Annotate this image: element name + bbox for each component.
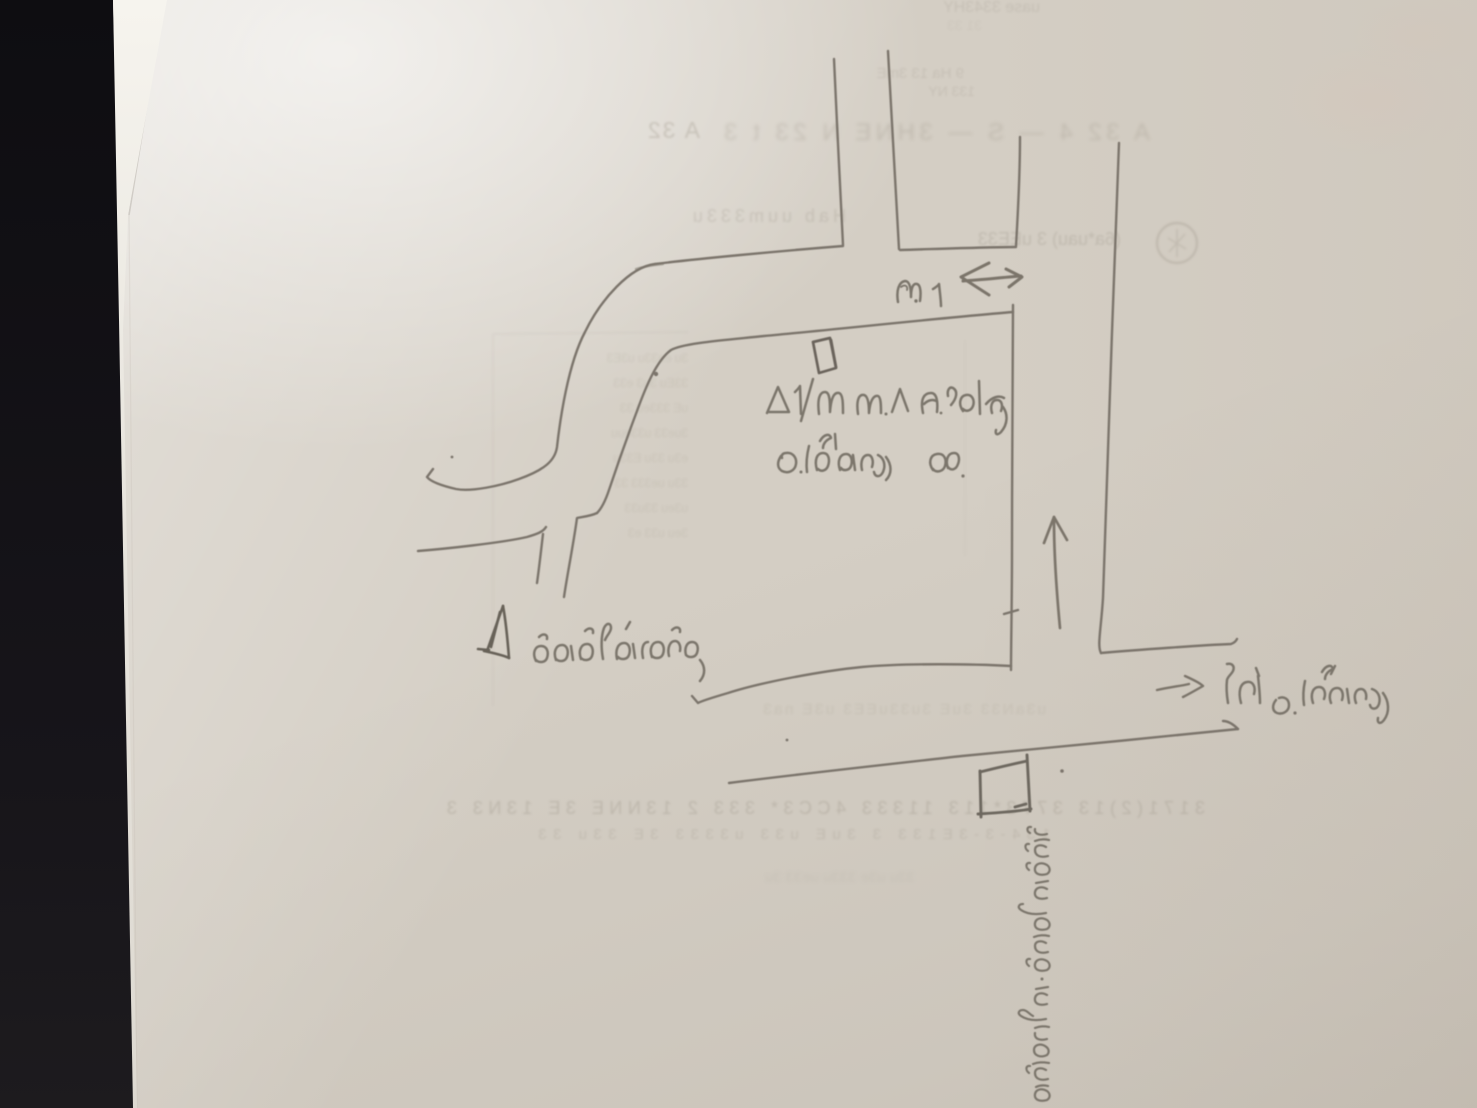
svg-text:31 33: 31 33: [947, 17, 982, 33]
svg-text:A 32: A 32: [646, 117, 700, 143]
svg-text:33u u3e 333u ue33 3u: 33u u3e 333u ue33 3u: [765, 869, 915, 886]
svg-text:3eu u33 e3: 3eu u33 e3: [628, 526, 688, 540]
svg-text:e3u 33u E33u: e3u 33u E33u: [613, 451, 688, 465]
svg-text:uE 333eu 33: uE 333eu 33: [620, 401, 688, 415]
svg-text:uase 3343HY: uase 3343HY: [943, 0, 1040, 16]
svg-text:u3aN33 3uE 3u33uEE3 u3E na3: u3aN33 3uE 3u33uEE3 u3E na3: [761, 701, 1046, 718]
svg-text:3ue33 u33euu: 3ue33 u33euu: [611, 426, 688, 440]
svg-text:3171(2)13 3773*113 11333 4CC3*: 3171(2)13 3773*113 11333 4CC3* 333 2 13N…: [441, 798, 1205, 818]
svg-text:u3eu 33u33: u3eu 33u33: [624, 501, 688, 515]
svg-text:Hab uum333u: Hab uum333u: [689, 206, 846, 226]
svg-text:3u ea33u u3E3: 3u ea33u u3E3: [606, 351, 688, 365]
svg-text:134-3-3E133 3 3uE u33 u3333 3E: 134-3-3E133 3 3uE u33 u3333 3E 33u 33: [532, 826, 1050, 843]
svg-text:133 NY: 133 NY: [928, 83, 975, 99]
svg-text:33u ue333 33: 33u ue333 33: [614, 476, 688, 490]
svg-text:(6a*uau) 3 uEE33: (6a*uau) 3 uEE33: [978, 229, 1121, 249]
svg-text:A 32 4 — S — 3HNE N 23 t 3: A 32 4 — S — 3HNE N 23 t 3: [720, 119, 1150, 146]
